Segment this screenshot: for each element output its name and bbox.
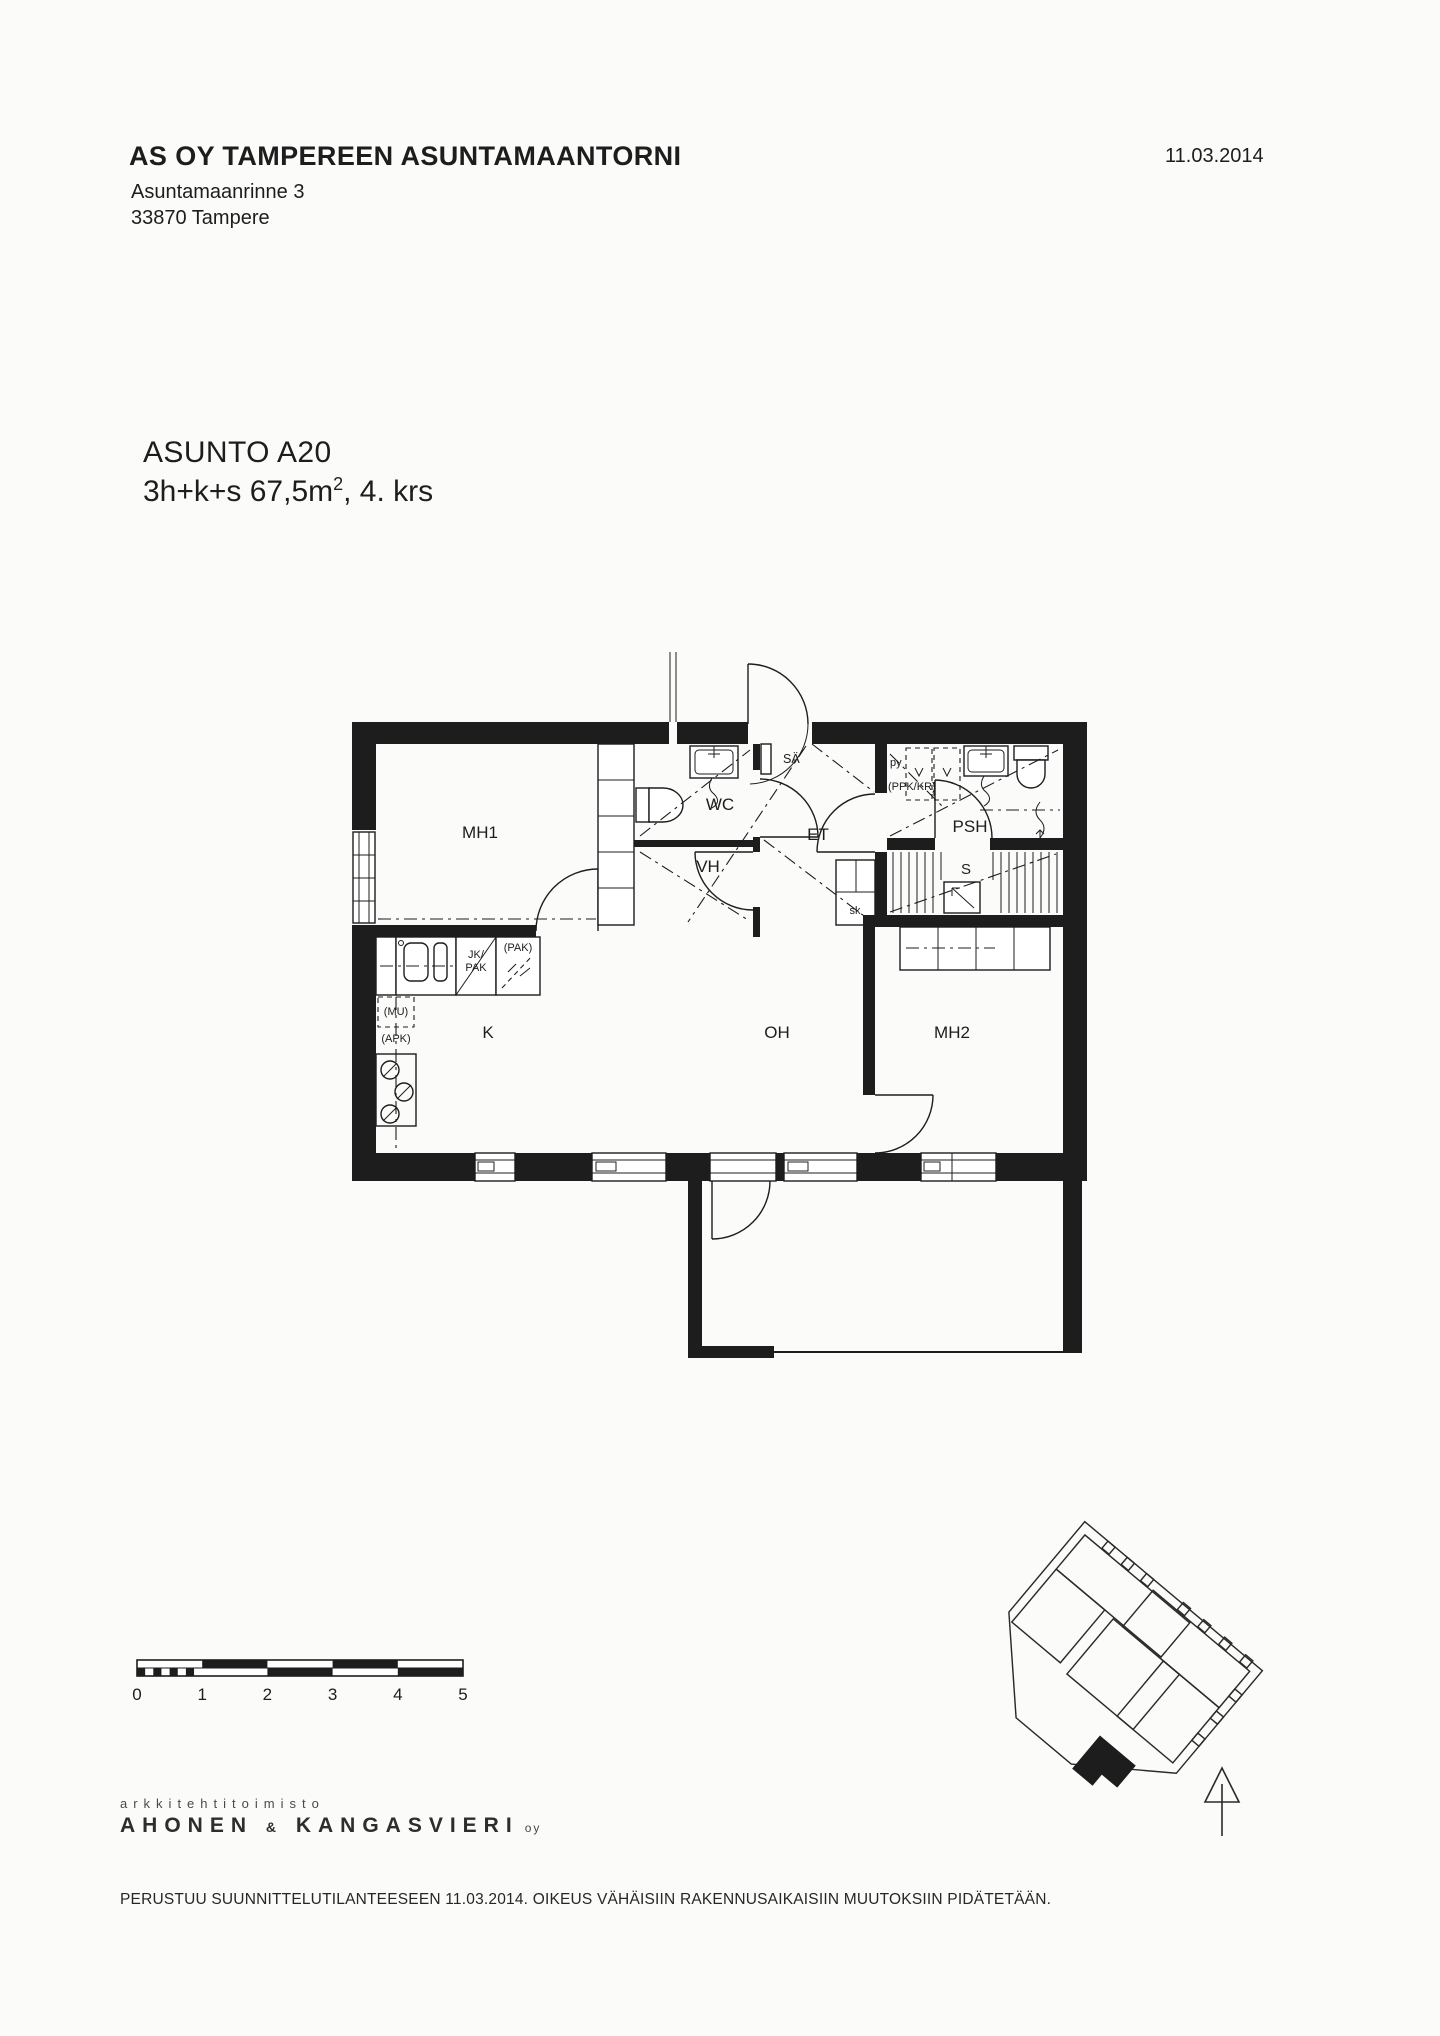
scale-tick-1: 1 <box>197 1685 206 1704</box>
psh-toilet-tank <box>1014 746 1048 760</box>
logo-name: AHONEN & KANGASVIERIoy <box>120 1814 541 1838</box>
room-label-mh1: MH1 <box>462 823 498 842</box>
wall-right <box>1063 722 1087 1181</box>
balcony-wall-stub <box>688 1346 774 1358</box>
company-title: AS OY TAMPEREEN ASUNTAMAANTORNI <box>129 141 681 172</box>
room-label-mh2: MH2 <box>934 1023 970 1042</box>
room-label-s: S <box>961 861 971 878</box>
wall-top-left <box>352 722 669 744</box>
wall-bottom <box>776 1153 784 1181</box>
balcony-wall-left <box>688 1181 702 1358</box>
wall-vh-et <box>753 907 760 937</box>
window-oh-right <box>784 1153 857 1181</box>
scale-tick-4: 4 <box>393 1685 402 1704</box>
scale-bar: 0 1 2 3 4 5 <box>130 1650 476 1710</box>
wall-left-upper <box>352 722 376 830</box>
wall-psh-s <box>887 838 935 850</box>
apartment-spec: 3h+k+s 67,5m2, 4. krs <box>143 474 433 509</box>
scale-tick-3: 3 <box>328 1685 337 1704</box>
window-oh-left <box>592 1153 666 1181</box>
spec-superscript: 2 <box>333 474 343 494</box>
label-mu: (MU) <box>384 1006 408 1018</box>
wall-wc-vh <box>634 840 760 847</box>
wall-bottom <box>666 1153 710 1181</box>
site-plan <box>950 1468 1310 1868</box>
wall-bottom <box>352 1153 475 1181</box>
dryer-reservation <box>934 748 960 800</box>
room-label-wc: WC <box>706 795 734 814</box>
wall-mh1-k <box>376 925 536 937</box>
electric-cabinet <box>761 744 771 774</box>
disclaimer-text: PERUSTUU SUUNNITTELUTILANTEESEEN 11.03.2… <box>120 1891 1051 1909</box>
wall-left-lower <box>352 925 376 1181</box>
room-label-py: py <box>890 757 902 769</box>
logo-studio-text: arkkitehtitoimisto <box>120 1796 541 1811</box>
balcony-door-arc <box>712 1181 770 1239</box>
wall-bottom <box>996 1153 1087 1181</box>
room-label-k: K <box>482 1023 494 1042</box>
balcony-door <box>710 1153 776 1181</box>
label-pak-opt: (PAK) <box>504 942 533 954</box>
label-apk: (APK) <box>381 1033 410 1045</box>
room-label-ppk-kr: (PPK/KR) <box>888 781 936 793</box>
scale-bar-segments <box>137 1660 463 1676</box>
wall-joint <box>669 722 677 744</box>
wall-bottom <box>857 1153 921 1181</box>
room-label-sk: sk <box>850 905 862 917</box>
spec-suffix: , 4. krs <box>343 475 433 508</box>
wall-wc-et <box>753 837 760 852</box>
wc-toilet-tank <box>636 788 649 822</box>
address-line2: 33870 Tampere <box>131 207 270 230</box>
architect-logo: arkkitehtitoimisto AHONEN & KANGASVIERIo… <box>120 1796 541 1838</box>
mh1-closets <box>598 744 634 925</box>
room-label-vh: VH <box>696 857 720 876</box>
wall-wc-et <box>753 744 760 770</box>
wall-oh-mh2 <box>863 915 875 1095</box>
entry-door-arc <box>748 664 808 724</box>
window-k <box>475 1153 515 1181</box>
mh1-door-arc <box>536 869 598 931</box>
mh2-closets <box>900 927 1050 970</box>
scale-tick-2: 2 <box>263 1685 272 1704</box>
north-arrow-icon <box>1205 1768 1239 1836</box>
spec-prefix: 3h+k+s 67,5m <box>143 475 333 508</box>
scale-tick-0: 0 <box>132 1685 141 1704</box>
balcony-wall-right <box>1063 1181 1082 1352</box>
room-label-psh: PSH <box>953 817 988 836</box>
label-pak: PAK <box>465 962 487 974</box>
site-building-block <box>1117 1661 1219 1763</box>
wall-psh-s <box>990 838 1063 850</box>
wall-s-mh2 <box>875 915 1063 927</box>
logo-ampersand: & <box>266 1819 283 1835</box>
window-mh2 <box>921 1153 996 1181</box>
mh2-door-arc <box>875 1095 933 1153</box>
wall-top-right <box>812 722 1087 744</box>
label-jk: JK/ <box>468 949 485 961</box>
apartment-id: ASUNTO A20 <box>143 436 332 470</box>
site-highlight-unit <box>1072 1735 1136 1798</box>
logo-suffix: oy <box>525 1821 542 1835</box>
drawing-page: AS OY TAMPEREEN ASUNTAMAANTORNI Asuntama… <box>0 0 1440 2036</box>
floor-plan: MH1 WC SÄ ET VH py (PPK/KR) PSH S sk K O… <box>340 648 1100 1364</box>
logo-name-b: KANGASVIERI <box>296 1814 519 1837</box>
site-building-block <box>1012 1569 1105 1663</box>
logo-name-a: AHONEN <box>120 1814 253 1837</box>
room-label-oh: OH <box>764 1023 790 1042</box>
scale-tick-5: 5 <box>458 1685 467 1704</box>
site-building-wing <box>1123 1590 1250 1707</box>
drawing-date: 11.03.2014 <box>1165 145 1264 168</box>
wall-top-mid <box>677 722 748 744</box>
room-label-sa: SÄ <box>783 752 800 766</box>
wall-bottom <box>515 1153 592 1181</box>
kitchen-left-column <box>376 997 416 1153</box>
wall-et-psh <box>875 744 887 793</box>
address-line1: Asuntamaanrinne 3 <box>131 181 304 204</box>
wc-toilet-bowl <box>649 788 683 822</box>
room-label-et: ET <box>807 825 829 844</box>
